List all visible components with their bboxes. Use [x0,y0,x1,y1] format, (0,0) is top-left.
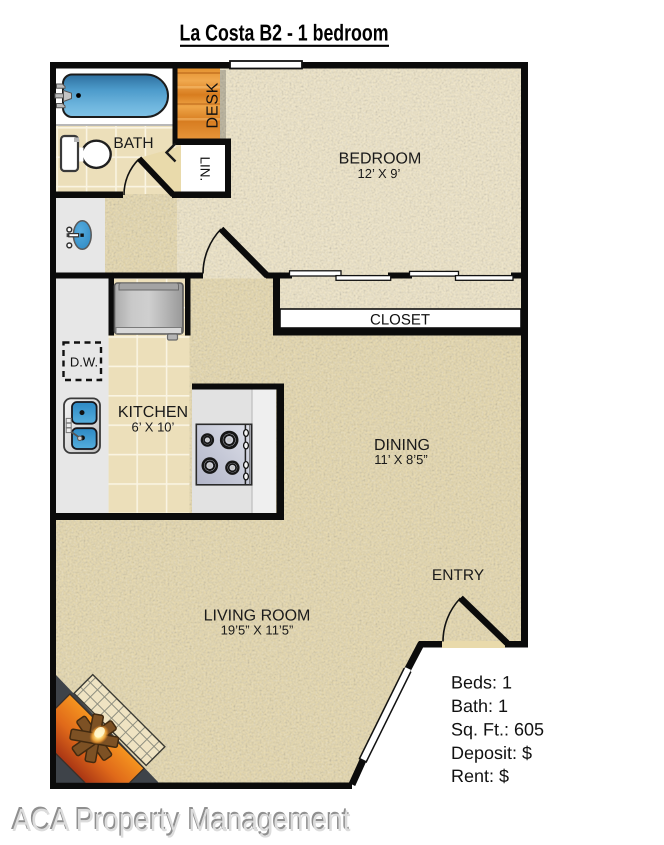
svg-text:LIN.: LIN. [198,157,213,182]
svg-text:11’ X 8’5”: 11’ X 8’5” [374,452,427,467]
svg-text:12’ X 9’: 12’ X 9’ [358,166,401,181]
svg-text:KITCHEN: KITCHEN [118,404,188,421]
svg-text:BEDROOM: BEDROOM [339,151,422,168]
svg-text:D.W.: D.W. [70,355,98,370]
svg-text:CLOSET: CLOSET [370,312,430,329]
svg-text:Deposit: $: Deposit: $ [451,743,532,763]
svg-text:ACA Property Management: ACA Property Management [13,802,351,838]
svg-text:DESK: DESK [205,82,222,129]
svg-text:Rent: $: Rent: $ [451,766,509,786]
svg-text:La Costa B2 - 1 bedroom: La Costa B2 - 1 bedroom [180,20,389,46]
svg-text:6’ X 10’: 6’ X 10’ [132,420,175,435]
svg-text:Beds: 1: Beds: 1 [451,673,512,693]
svg-text:ENTRY: ENTRY [432,567,484,584]
svg-text:19’5” X 11’5”: 19’5” X 11’5” [221,623,294,638]
svg-text:Bath: 1: Bath: 1 [451,696,508,716]
svg-text:Sq. Ft.: 605: Sq. Ft.: 605 [451,720,544,740]
svg-text:BATH: BATH [113,135,153,152]
